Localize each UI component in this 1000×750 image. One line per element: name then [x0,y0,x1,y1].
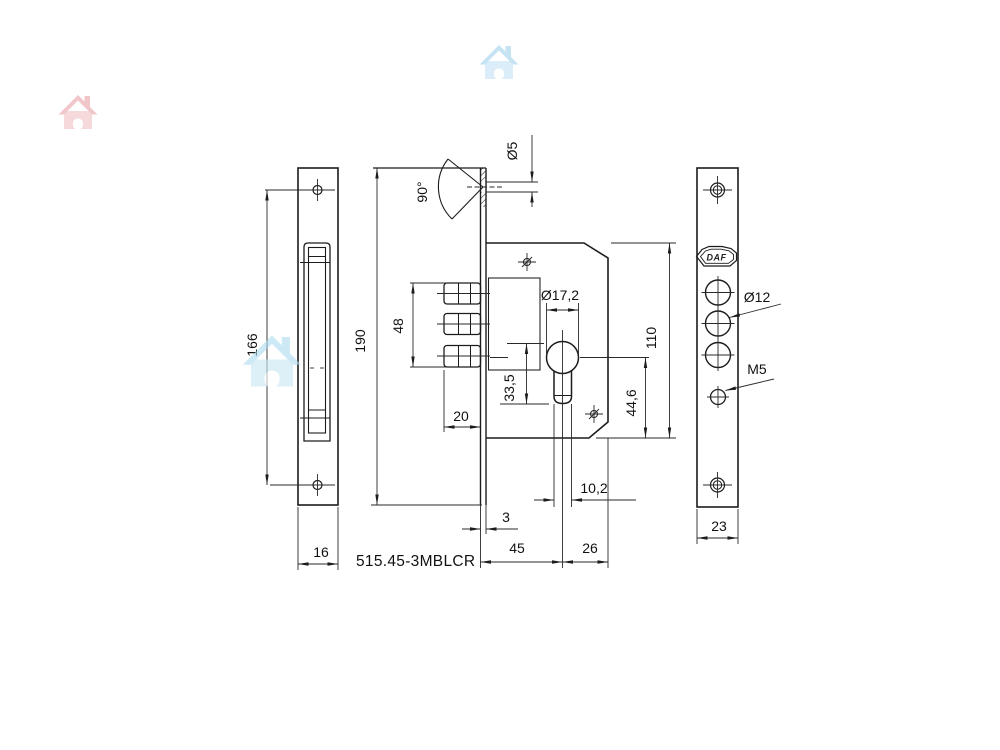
case-top-fixing-mark [518,253,536,271]
dim-label-44-6: 44,6 [623,389,639,416]
dim-label-90deg: 90° [414,181,430,202]
dim-hole-spacing: 166 [244,190,267,485]
faceplate [481,168,487,505]
part-number: 515.45-3MBLCR [356,553,475,570]
dim-label-48: 48 [390,318,406,334]
countersink-fan-upper-line [448,159,483,187]
lock-case-outline [486,243,608,438]
dim-faceplate-height: 190 [352,168,377,505]
countersink-hole: 90° Ø5 [414,135,538,219]
dim-faceplate-thickness: 3 [462,509,518,529]
house-watermark-blue-top [480,45,519,80]
dim-label-45: 45 [509,540,525,556]
dim-bolt-group: 48 [390,283,446,367]
front-plate-outline [697,168,738,507]
front-plate-top-hole [703,176,732,204]
bolt-housing [489,278,541,370]
daf-logo-badge: DAF [697,247,737,267]
dim-backset-chain: 45 26 [481,540,609,562]
dim-label-m5: M5 [747,361,767,377]
dim-label-3: 3 [502,509,510,525]
bolt-1 [437,283,490,304]
bolt-3 [437,346,490,368]
lock-body-view: 190 90° Ø5 [352,135,676,568]
dim-label-23: 23 [711,518,727,534]
case-bottom-fixing-mark [585,405,603,423]
dim-bolt-length: 20 [444,370,481,432]
dim-label-190: 190 [352,329,368,353]
dim-stem-width: 10,2 [534,480,636,500]
dim-label-d17-2: Ø17,2 [541,287,579,303]
dim-label-26: 26 [582,540,598,556]
front-plate-m5-hole [707,386,729,408]
dim-front-plate-width: 23 [697,509,738,544]
strike-plate-slot [300,243,330,441]
dim-strike-plate-width: 16 [298,507,338,570]
dim-label-110: 110 [643,327,659,350]
dim-label-d12: Ø12 [744,289,771,305]
cylinder-profile [490,330,649,568]
callout-m5: M5 [726,361,775,391]
house-watermark-pink-left [59,95,98,130]
dim-cylinder-height: 33,5 [500,344,549,405]
dim-label-20: 20 [453,408,469,424]
dim-cylinder-diameter: Ø17,2 [541,287,579,355]
strike-plate-top-hole [265,179,335,201]
dim-label-d5: Ø5 [504,141,520,160]
dim-label-33-5: 33,5 [501,374,517,401]
lock-drawing-canvas: 166 16 190 [0,0,1000,750]
strike-plate-bottom-hole [270,474,335,496]
countersink-fan-lower-line [452,187,483,219]
front-plate-view: DAF Ø12 [697,168,782,544]
locking-bolts [437,283,490,367]
bolt-2 [437,314,490,335]
technical-drawing: 166 16 190 [0,0,1000,750]
dim-label-10-2: 10,2 [580,480,607,496]
front-plate-bottom-hole [703,472,732,498]
dim-label-16: 16 [313,544,329,560]
front-plate-bolt-holes [702,276,735,371]
brand-label: DAF [707,253,727,263]
